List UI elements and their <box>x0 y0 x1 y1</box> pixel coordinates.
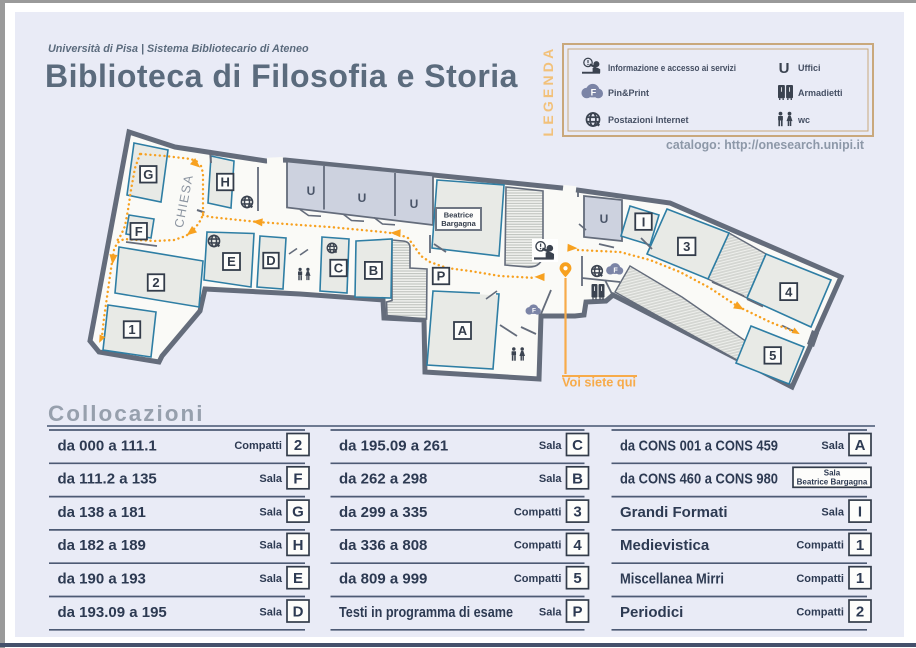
svg-text:Sala: Sala <box>259 473 283 485</box>
svg-text:da 193.09 a 195: da 193.09 a 195 <box>58 604 167 621</box>
svg-text:da 262 a 298: da 262 a 298 <box>339 471 427 488</box>
svg-text:B: B <box>369 263 378 278</box>
svg-text:U: U <box>779 60 790 77</box>
svg-text:Collocazioni: Collocazioni <box>48 401 205 426</box>
svg-text:Compatti: Compatti <box>234 440 282 452</box>
svg-text:U: U <box>358 191 367 205</box>
svg-text:E: E <box>293 570 303 587</box>
svg-text:LEGENDA: LEGENDA <box>540 46 556 137</box>
svg-text:B: B <box>572 470 583 487</box>
svg-text:E: E <box>227 254 236 269</box>
svg-text:da 111.2 a 135: da 111.2 a 135 <box>58 471 157 488</box>
svg-text:F: F <box>293 470 302 487</box>
svg-text:Grandi Formati: Grandi Formati <box>620 504 728 521</box>
svg-text:4: 4 <box>573 537 582 554</box>
svg-text:F: F <box>532 308 536 315</box>
svg-text:Sala: Sala <box>539 440 563 452</box>
svg-text:Compatti: Compatti <box>514 540 562 552</box>
svg-text:2: 2 <box>856 604 864 621</box>
svg-text:1: 1 <box>128 322 135 337</box>
svg-text:H: H <box>293 537 304 554</box>
svg-text:da 195.09 a 261: da 195.09 a 261 <box>339 437 448 454</box>
svg-text:Compatti: Compatti <box>514 573 562 585</box>
svg-text:I: I <box>858 504 862 521</box>
svg-text:Medievistica: Medievistica <box>620 537 710 554</box>
svg-text:da 809 a 999: da 809 a 999 <box>339 571 427 588</box>
svg-text:Periodici: Periodici <box>620 604 683 621</box>
svg-text:Miscellanea Mirri: Miscellanea Mirri <box>620 571 724 588</box>
svg-text:P: P <box>572 604 582 621</box>
svg-text:D: D <box>293 604 304 621</box>
svg-text:3: 3 <box>573 504 581 521</box>
svg-text:Sala: Sala <box>259 540 283 552</box>
svg-text:U: U <box>410 197 419 211</box>
svg-text:5: 5 <box>769 348 776 363</box>
svg-text:Sala: Sala <box>259 506 283 518</box>
svg-text:da CONS 001 a CONS 459: da CONS 001 a CONS 459 <box>620 437 778 454</box>
svg-text:da 000 a 111.1: da 000 a 111.1 <box>58 437 157 454</box>
svg-text:Beatrice Bargagna: Beatrice Bargagna <box>797 477 868 486</box>
svg-text:P: P <box>437 269 446 284</box>
svg-text:G: G <box>292 504 304 521</box>
svg-text:Sala: Sala <box>821 506 845 518</box>
svg-text:Sala: Sala <box>259 573 283 585</box>
svg-text:catalogo: http://onesearch.uni: catalogo: http://onesearch.unipi.it <box>666 138 865 152</box>
svg-text:G: G <box>143 167 153 182</box>
svg-text:Sala: Sala <box>824 468 841 477</box>
svg-text:da CONS 460 a CONS 980: da CONS 460 a CONS 980 <box>620 471 778 488</box>
svg-text:Biblioteca di Filosofia e Stor: Biblioteca di Filosofia e Storia <box>45 58 518 94</box>
svg-text:1: 1 <box>856 537 864 554</box>
svg-text:Sala: Sala <box>821 440 845 452</box>
svg-text:2: 2 <box>294 437 302 454</box>
svg-text:H: H <box>221 175 230 190</box>
svg-text:Compatti: Compatti <box>796 540 844 552</box>
svg-text:da 182 a 189: da 182 a 189 <box>58 537 146 554</box>
svg-text:D: D <box>266 253 275 268</box>
svg-text:Postazioni Internet: Postazioni Internet <box>608 115 689 125</box>
svg-text:C: C <box>572 437 583 454</box>
svg-text:Armadietti: Armadietti <box>798 88 843 98</box>
svg-text:Compatti: Compatti <box>514 506 562 518</box>
svg-text:da 299 a 335: da 299 a 335 <box>339 504 427 521</box>
svg-text:2: 2 <box>152 275 159 290</box>
svg-text:Bargagna: Bargagna <box>441 219 476 228</box>
svg-text:wc: wc <box>797 115 810 125</box>
svg-text:A: A <box>855 437 866 454</box>
svg-text:F: F <box>613 265 618 274</box>
svg-text:U: U <box>600 212 609 226</box>
svg-text:Università di Pisa | Sistema B: Università di Pisa | Sistema Bibliotecar… <box>48 43 309 55</box>
svg-text:U: U <box>307 184 316 198</box>
svg-text:da 336 a 808: da 336 a 808 <box>339 537 427 554</box>
svg-text:3: 3 <box>683 239 690 254</box>
svg-text:1: 1 <box>856 570 864 587</box>
svg-text:F: F <box>135 224 143 239</box>
svg-text:Sala: Sala <box>259 606 283 618</box>
svg-text:Voi siete qui: Voi siete qui <box>562 375 636 390</box>
svg-text:da 138 a 181: da 138 a 181 <box>58 504 146 521</box>
svg-text:Compatti: Compatti <box>796 573 844 585</box>
svg-text:I: I <box>642 214 646 229</box>
svg-text:Informazione e accesso ai serv: Informazione e accesso ai servizi <box>608 63 736 73</box>
svg-text:Uffici: Uffici <box>798 63 821 73</box>
svg-text:Sala: Sala <box>539 606 563 618</box>
svg-text:A: A <box>458 323 468 338</box>
svg-text:4: 4 <box>785 284 793 299</box>
svg-text:C: C <box>334 261 344 276</box>
svg-text:Sala: Sala <box>539 473 563 485</box>
svg-text:5: 5 <box>573 570 581 587</box>
svg-text:Compatti: Compatti <box>796 606 844 618</box>
svg-text:Testi in programma di esame: Testi in programma di esame <box>339 604 513 621</box>
svg-text:Pin&Print: Pin&Print <box>608 88 649 98</box>
svg-text:F: F <box>591 88 597 98</box>
svg-text:da 190 a 193: da 190 a 193 <box>58 571 146 588</box>
